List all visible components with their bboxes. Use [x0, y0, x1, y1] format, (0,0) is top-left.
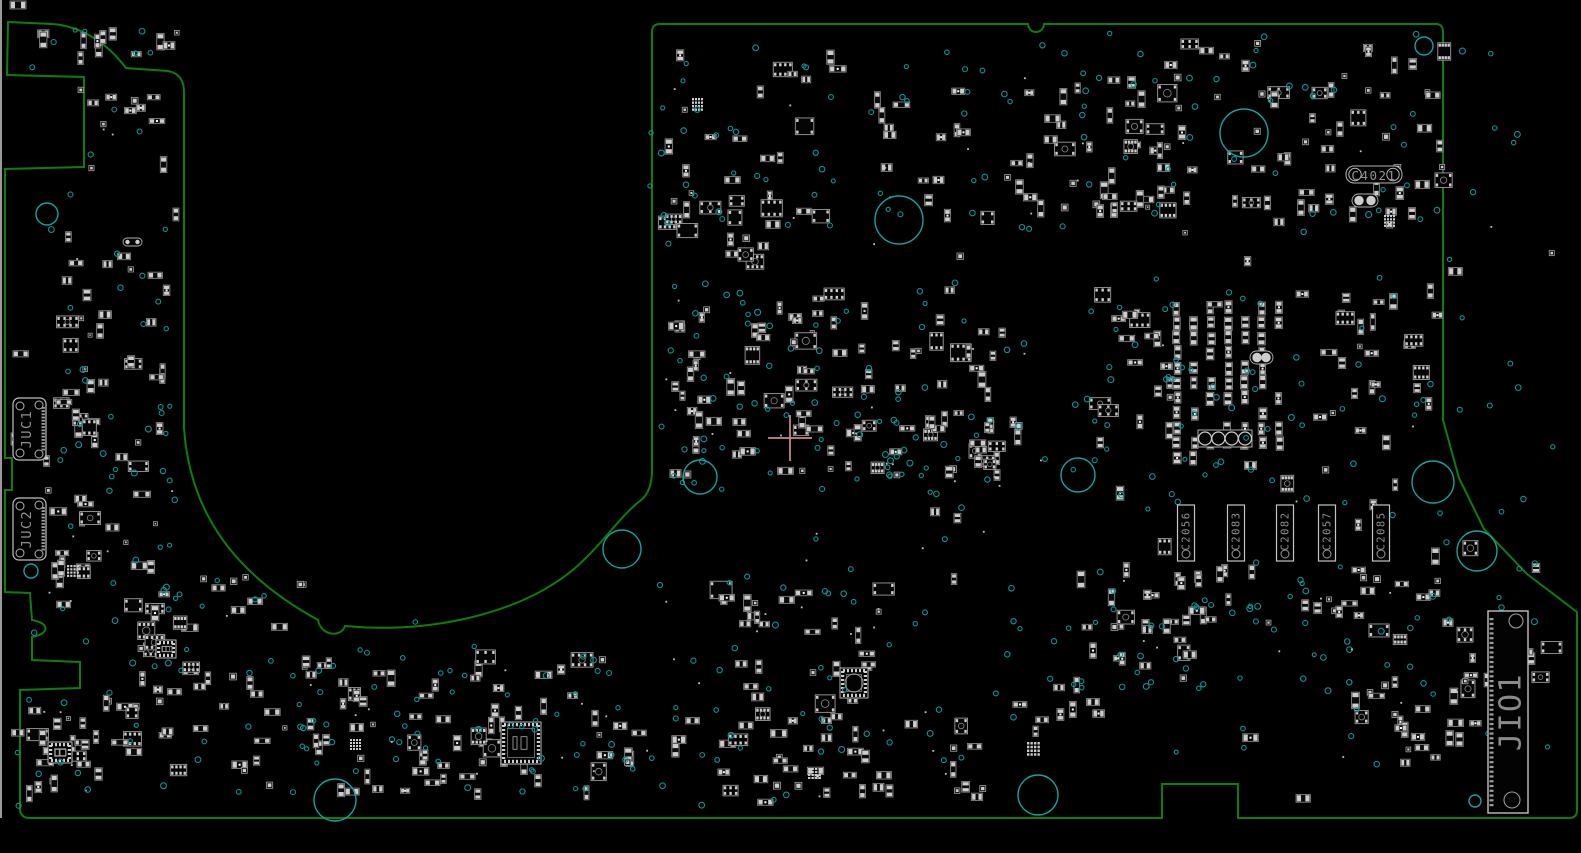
smd-component[interactable]	[1232, 195, 1237, 207]
smd-component[interactable]	[1069, 701, 1076, 717]
smd-component[interactable]	[339, 679, 348, 687]
smd-component[interactable]	[1416, 594, 1430, 601]
smd-component[interactable]	[1119, 335, 1135, 341]
smd-component[interactable]	[1036, 717, 1049, 723]
smd-pad[interactable]	[1463, 678, 1468, 683]
smd-component[interactable]	[302, 656, 310, 667]
smd-component[interactable]	[757, 86, 763, 98]
smd-component[interactable]	[1161, 363, 1173, 370]
smd-component[interactable]	[680, 391, 685, 400]
smd-component[interactable]	[359, 697, 367, 707]
smd-component[interactable]	[515, 706, 522, 720]
smd-component[interactable]	[695, 412, 703, 429]
smd-component[interactable]	[1103, 193, 1117, 199]
smd-component[interactable]	[93, 730, 98, 743]
smd-pad[interactable]	[128, 267, 133, 272]
smd-component[interactable]	[80, 718, 86, 729]
smd-component[interactable]	[805, 629, 820, 634]
smd-component[interactable]	[247, 677, 253, 690]
smd-ic[interactable]	[1095, 288, 1111, 303]
smd-component[interactable]	[945, 287, 954, 294]
smd-component[interactable]	[975, 456, 982, 468]
smd-component[interactable]	[1259, 408, 1267, 419]
smd-component[interactable]	[1259, 375, 1266, 389]
smd-component[interactable]	[1298, 200, 1305, 216]
smd-pad[interactable]	[1255, 40, 1261, 46]
smd-ic[interactable]	[1438, 43, 1451, 60]
smd-component[interactable]	[453, 735, 461, 750]
smd-component[interactable]	[778, 467, 794, 474]
smd-component[interactable]	[766, 221, 780, 229]
smd-component[interactable]	[856, 627, 861, 643]
smd-ic[interactable]	[812, 209, 829, 222]
smd-component[interactable]	[727, 233, 733, 246]
smd-component[interactable]	[72, 409, 79, 421]
smd-component[interactable]	[967, 743, 981, 749]
smd-component[interactable]	[796, 411, 811, 417]
smd-pad[interactable]	[89, 166, 94, 171]
smd-component[interactable]	[1178, 576, 1186, 589]
smd-ic[interactable]	[833, 387, 853, 397]
smd-pad[interactable]	[1005, 175, 1011, 181]
smd-ic[interactable]	[87, 551, 101, 561]
smd-component[interactable]	[1097, 437, 1104, 448]
smd-component[interactable]	[149, 118, 165, 123]
dual-round-component[interactable]	[123, 238, 142, 246]
smd-pad[interactable]	[153, 522, 157, 526]
smd-component[interactable]	[460, 774, 476, 780]
smd-component[interactable]	[35, 781, 42, 792]
smd-ic[interactable]	[1158, 538, 1171, 554]
smd-component[interactable]	[966, 345, 971, 358]
smd-component[interactable]	[954, 410, 964, 415]
smd-component[interactable]	[1140, 662, 1151, 669]
smd-component[interactable]	[1351, 388, 1357, 398]
smd-component[interactable]	[862, 662, 876, 667]
smd-component[interactable]	[53, 718, 61, 729]
smd-component[interactable]	[592, 710, 598, 726]
smd-ic[interactable]	[1541, 642, 1562, 654]
smd-component[interactable]	[1395, 725, 1407, 731]
smd-component[interactable]	[962, 781, 970, 792]
smd-component[interactable]	[874, 92, 880, 108]
capacitor-bank[interactable]: C2056C2083C2082C2057C2085	[1178, 505, 1390, 561]
smd-component[interactable]	[1217, 566, 1224, 582]
smd-component[interactable]	[409, 714, 421, 720]
smd-component[interactable]	[1190, 317, 1198, 330]
smd-pad[interactable]	[916, 348, 921, 353]
smd-component[interactable]	[1097, 205, 1104, 218]
smd-component[interactable]	[1224, 393, 1232, 405]
smd-component[interactable]	[812, 310, 823, 316]
smd-component[interactable]	[1532, 563, 1540, 572]
smd-pad[interactable]	[876, 609, 881, 614]
boardview-canvas[interactable]: JUC1 JUC2 JIO1 C4021 C2056C2083C2082C205…	[0, 0, 1581, 853]
smd-component[interactable]	[969, 440, 985, 447]
smd-pad[interactable]	[980, 786, 986, 792]
smd-pad[interactable]	[1259, 91, 1265, 97]
smd-pad[interactable]	[1360, 575, 1366, 581]
smd-component[interactable]	[827, 50, 835, 64]
smd-component[interactable]	[1195, 574, 1201, 586]
smd-component[interactable]	[1326, 165, 1335, 172]
smd-component[interactable]	[81, 740, 89, 750]
smd-component[interactable]	[1355, 428, 1366, 434]
smd-component[interactable]	[491, 704, 499, 717]
smd-component[interactable]	[1380, 93, 1390, 98]
smd-component[interactable]	[83, 289, 91, 301]
smd-pad[interactable]	[1254, 128, 1260, 134]
smd-component[interactable]	[150, 374, 164, 380]
smd-component[interactable]	[1013, 702, 1027, 708]
smd-pad[interactable]	[230, 673, 237, 680]
smd-component[interactable]	[97, 323, 104, 338]
smd-component[interactable]	[1243, 734, 1259, 742]
smd-pad[interactable]	[1382, 682, 1389, 689]
smd-ic[interactable]	[1281, 475, 1294, 492]
smd-component[interactable]	[884, 124, 893, 131]
smd-component[interactable]	[668, 322, 683, 330]
smd-component[interactable]	[264, 709, 280, 716]
smd-component[interactable]	[1173, 378, 1181, 389]
smd-ic[interactable]	[984, 459, 996, 469]
smd-component[interactable]	[1432, 312, 1443, 318]
smd-component[interactable]	[792, 317, 802, 323]
smd-component[interactable]	[1173, 331, 1180, 344]
smd-ic[interactable]	[796, 379, 817, 391]
smd-component[interactable]	[1370, 313, 1375, 330]
smd-component[interactable]	[1038, 200, 1044, 217]
smd-component[interactable]	[1470, 653, 1476, 662]
smd-component[interactable]	[740, 448, 756, 456]
smd-component[interactable]	[975, 447, 986, 453]
smd-pad[interactable]	[1374, 576, 1381, 583]
smd-component[interactable]	[1313, 414, 1326, 420]
smd-component[interactable]	[1275, 317, 1282, 329]
smd-component[interactable]	[1325, 194, 1333, 204]
qfn-chip[interactable]	[156, 640, 176, 658]
smd-pad[interactable]	[1070, 180, 1076, 186]
smd-pad[interactable]	[124, 540, 128, 544]
smd-component[interactable]	[13, 351, 29, 357]
smd-component[interactable]	[853, 726, 858, 742]
smd-component[interactable]	[999, 328, 1005, 337]
smd-component[interactable]	[725, 177, 741, 184]
smd-component[interactable]	[1251, 166, 1265, 172]
smd-component[interactable]	[937, 381, 946, 388]
smd-component[interactable]	[1219, 54, 1229, 59]
smd-component[interactable]	[81, 32, 86, 48]
smd-component[interactable]	[40, 32, 47, 48]
smd-pad[interactable]	[1392, 711, 1398, 717]
smd-component[interactable]	[1426, 398, 1432, 411]
smd-ic[interactable]	[665, 214, 682, 224]
smd-ic[interactable]	[471, 728, 486, 745]
smd-ic[interactable]	[824, 288, 844, 300]
smd-ic[interactable]	[1463, 541, 1478, 556]
smd-pad[interactable]	[599, 657, 605, 663]
smd-component[interactable]	[1414, 383, 1421, 392]
smd-component[interactable]	[471, 675, 480, 681]
smd-component[interactable]	[1145, 333, 1159, 339]
smd-component[interactable]	[1352, 692, 1360, 708]
smd-component[interactable]	[829, 66, 846, 72]
smd-pad[interactable]	[795, 782, 802, 789]
smd-pad[interactable]	[671, 198, 677, 204]
smd-component[interactable]	[936, 315, 944, 325]
smd-component[interactable]	[103, 260, 112, 267]
smd-component[interactable]	[1173, 452, 1181, 464]
smd-component[interactable]	[162, 728, 173, 735]
smd-component[interactable]	[1011, 160, 1023, 165]
smd-component[interactable]	[859, 784, 865, 797]
smd-pad[interactable]	[66, 716, 70, 720]
smd-component[interactable]	[744, 683, 758, 689]
smd-component[interactable]	[1302, 600, 1309, 611]
smd-component[interactable]	[1086, 142, 1092, 152]
connector-juc2[interactable]: JUC2	[13, 498, 46, 560]
smd-pad[interactable]	[1061, 204, 1068, 211]
smd-component[interactable]	[1057, 709, 1064, 721]
smd-component[interactable]	[785, 386, 793, 403]
smd-component[interactable]	[131, 51, 141, 56]
smd-component[interactable]	[1276, 301, 1283, 313]
smd-component[interactable]	[726, 251, 739, 257]
smd-pad[interactable]	[1164, 144, 1170, 150]
smd-component[interactable]	[1178, 126, 1186, 140]
smd-ic[interactable]	[755, 708, 770, 721]
smd-component[interactable]	[873, 783, 884, 791]
smd-component[interactable]	[1075, 83, 1080, 93]
smd-component[interactable]	[365, 769, 370, 784]
smd-component[interactable]	[95, 34, 101, 48]
smd-component[interactable]	[1392, 677, 1398, 688]
smd-component[interactable]	[111, 740, 128, 746]
smd-ic[interactable]	[955, 718, 968, 734]
smd-component[interactable]	[689, 351, 706, 358]
smd-ic[interactable]	[745, 346, 760, 364]
smd-component[interactable]	[1060, 88, 1067, 104]
smd-pad[interactable]	[954, 788, 959, 793]
smd-component[interactable]	[1249, 565, 1255, 579]
smd-component[interactable]	[1174, 637, 1186, 643]
smd-component[interactable]	[756, 660, 762, 673]
smd-component[interactable]	[1415, 745, 1429, 751]
smd-component[interactable]	[613, 722, 627, 729]
smd-pad[interactable]	[1342, 74, 1347, 79]
smd-ic[interactable]	[1146, 124, 1164, 135]
smd-ic[interactable]	[1117, 610, 1134, 624]
smd-pad[interactable]	[1549, 251, 1554, 256]
smd-ic[interactable]	[63, 338, 78, 352]
smd-ic[interactable]	[126, 707, 138, 718]
smd-component[interactable]	[124, 107, 136, 113]
smd-component[interactable]	[752, 693, 764, 701]
smd-component[interactable]	[1411, 733, 1424, 740]
smd-ic[interactable]	[1532, 672, 1549, 682]
smd-component[interactable]	[441, 774, 447, 783]
smd-component[interactable]	[957, 129, 971, 136]
smd-component[interactable]	[1470, 720, 1481, 726]
smd-component[interactable]	[29, 707, 41, 714]
smd-component[interactable]	[11, 729, 24, 736]
smd-component[interactable]	[1015, 430, 1021, 445]
smd-component[interactable]	[1425, 92, 1440, 98]
smd-component[interactable]	[131, 562, 147, 570]
smd-pad[interactable]	[810, 670, 816, 676]
smd-ic[interactable]	[476, 650, 496, 664]
smd-component[interactable]	[1108, 168, 1115, 184]
smd-component[interactable]	[951, 574, 956, 585]
smd-ic[interactable]	[1158, 84, 1177, 101]
smd-ic[interactable]	[80, 512, 101, 525]
smd-component[interactable]	[969, 365, 983, 371]
smd-component[interactable]	[1175, 392, 1181, 403]
smd-component[interactable]	[1138, 91, 1145, 108]
smd-component[interactable]	[126, 748, 142, 755]
smd-ic[interactable]	[1181, 39, 1199, 49]
smd-component[interactable]	[978, 329, 989, 335]
smd-component[interactable]	[345, 788, 359, 795]
smd-pad[interactable]	[1366, 88, 1371, 93]
smd-ic[interactable]	[128, 461, 148, 472]
smd-component[interactable]	[163, 42, 175, 50]
smd-ic[interactable]	[1120, 201, 1137, 211]
smd-component[interactable]	[106, 94, 117, 100]
smd-component[interactable]	[1275, 422, 1282, 435]
smd-ic[interactable]	[862, 420, 876, 431]
smd-component[interactable]	[905, 720, 918, 728]
smd-pad[interactable]	[790, 339, 797, 346]
smd-pad[interactable]	[1440, 164, 1445, 169]
smd-component[interactable]	[1112, 202, 1118, 213]
smd-component[interactable]	[248, 598, 263, 605]
smd-component[interactable]	[1241, 317, 1249, 328]
smd-component[interactable]	[1192, 437, 1198, 448]
smd-component[interactable]	[1448, 267, 1462, 275]
smd-component[interactable]	[1342, 293, 1350, 302]
smd-component[interactable]	[1183, 615, 1191, 625]
smd-component[interactable]	[803, 745, 813, 751]
smd-component[interactable]	[194, 683, 206, 690]
smd-component[interactable]	[1386, 208, 1397, 215]
smd-ic[interactable]	[795, 118, 813, 135]
smd-component[interactable]	[1090, 643, 1097, 658]
smd-component[interactable]	[1341, 601, 1357, 606]
smd-component[interactable]	[475, 789, 481, 800]
smd-component[interactable]	[541, 698, 547, 714]
smd-component[interactable]	[39, 730, 46, 745]
smd-component[interactable]	[758, 799, 774, 805]
smd-ic[interactable]	[988, 441, 1005, 451]
smd-component[interactable]	[1241, 390, 1248, 404]
smd-component[interactable]	[900, 426, 915, 432]
smd-component[interactable]	[788, 718, 797, 724]
smd-component[interactable]	[432, 679, 438, 691]
smd-component[interactable]	[373, 671, 385, 676]
smd-pad[interactable]	[201, 576, 207, 582]
smd-component[interactable]	[1206, 392, 1214, 405]
smd-pad[interactable]	[1111, 624, 1118, 631]
smd-component[interactable]	[832, 618, 838, 629]
smd-component[interactable]	[687, 367, 693, 381]
smd-component[interactable]	[307, 718, 314, 730]
smd-component[interactable]	[1417, 124, 1431, 132]
smd-component[interactable]	[783, 766, 798, 772]
smd-ic[interactable]	[873, 583, 894, 595]
smd-component[interactable]	[205, 672, 211, 685]
smd-ic[interactable]	[1413, 365, 1429, 379]
smd-component[interactable]	[773, 758, 787, 763]
smd-component[interactable]	[95, 768, 102, 780]
smd-ic[interactable]	[57, 316, 79, 328]
smd-component[interactable]	[1158, 186, 1164, 198]
smd-component[interactable]	[737, 430, 750, 437]
smd-component[interactable]	[944, 209, 950, 222]
smd-component[interactable]	[1074, 677, 1080, 693]
smd-pad[interactable]	[1215, 94, 1220, 99]
smd-component[interactable]	[984, 422, 990, 432]
smd-pad[interactable]	[230, 578, 236, 584]
smd-component[interactable]	[1396, 187, 1404, 200]
smd-component[interactable]	[173, 208, 179, 221]
smd-component[interactable]	[1137, 415, 1143, 429]
smd-component[interactable]	[930, 508, 939, 516]
smd-component[interactable]	[103, 695, 109, 711]
smd-component[interactable]	[879, 107, 885, 123]
smd-component[interactable]	[56, 550, 69, 555]
smd-pad[interactable]	[682, 107, 687, 112]
smd-component[interactable]	[1224, 317, 1232, 330]
smd-component[interactable]	[250, 691, 263, 698]
smd-component[interactable]	[848, 698, 858, 703]
smd-component[interactable]	[936, 134, 946, 141]
smd-component[interactable]	[757, 334, 770, 340]
smd-component[interactable]	[1199, 47, 1213, 54]
smd-component[interactable]	[212, 585, 225, 591]
smd-component[interactable]	[1365, 350, 1378, 356]
smd-pad[interactable]	[174, 30, 179, 35]
smd-component[interactable]	[323, 735, 330, 746]
smd-component[interactable]	[876, 772, 891, 779]
smd-component[interactable]	[350, 724, 364, 732]
smd-component[interactable]	[63, 389, 80, 395]
smd-component[interactable]	[109, 28, 116, 40]
smd-component[interactable]	[760, 155, 774, 162]
smd-component[interactable]	[918, 178, 928, 183]
smd-component[interactable]	[160, 157, 167, 173]
smd-pad[interactable]	[78, 87, 83, 92]
smd-component[interactable]	[338, 784, 345, 797]
smd-component[interactable]	[1415, 181, 1429, 189]
smd-component[interactable]	[100, 31, 106, 44]
smd-component[interactable]	[1240, 376, 1247, 389]
smd-component[interactable]	[1409, 59, 1417, 70]
smd-component[interactable]	[824, 788, 830, 798]
smd-pad[interactable]	[753, 600, 758, 605]
smd-component[interactable]	[950, 761, 956, 777]
smd-component[interactable]	[1373, 300, 1384, 305]
smd-component[interactable]	[1225, 362, 1232, 375]
smd-component[interactable]	[886, 785, 893, 797]
smd-component[interactable]	[683, 202, 689, 218]
smd-component[interactable]	[1226, 594, 1231, 606]
smd-component[interactable]	[1189, 607, 1205, 615]
smd-ic[interactable]	[981, 211, 994, 224]
smd-component[interactable]	[1225, 378, 1232, 390]
smd-pad[interactable]	[1183, 230, 1188, 235]
smd-component[interactable]	[1045, 115, 1061, 123]
